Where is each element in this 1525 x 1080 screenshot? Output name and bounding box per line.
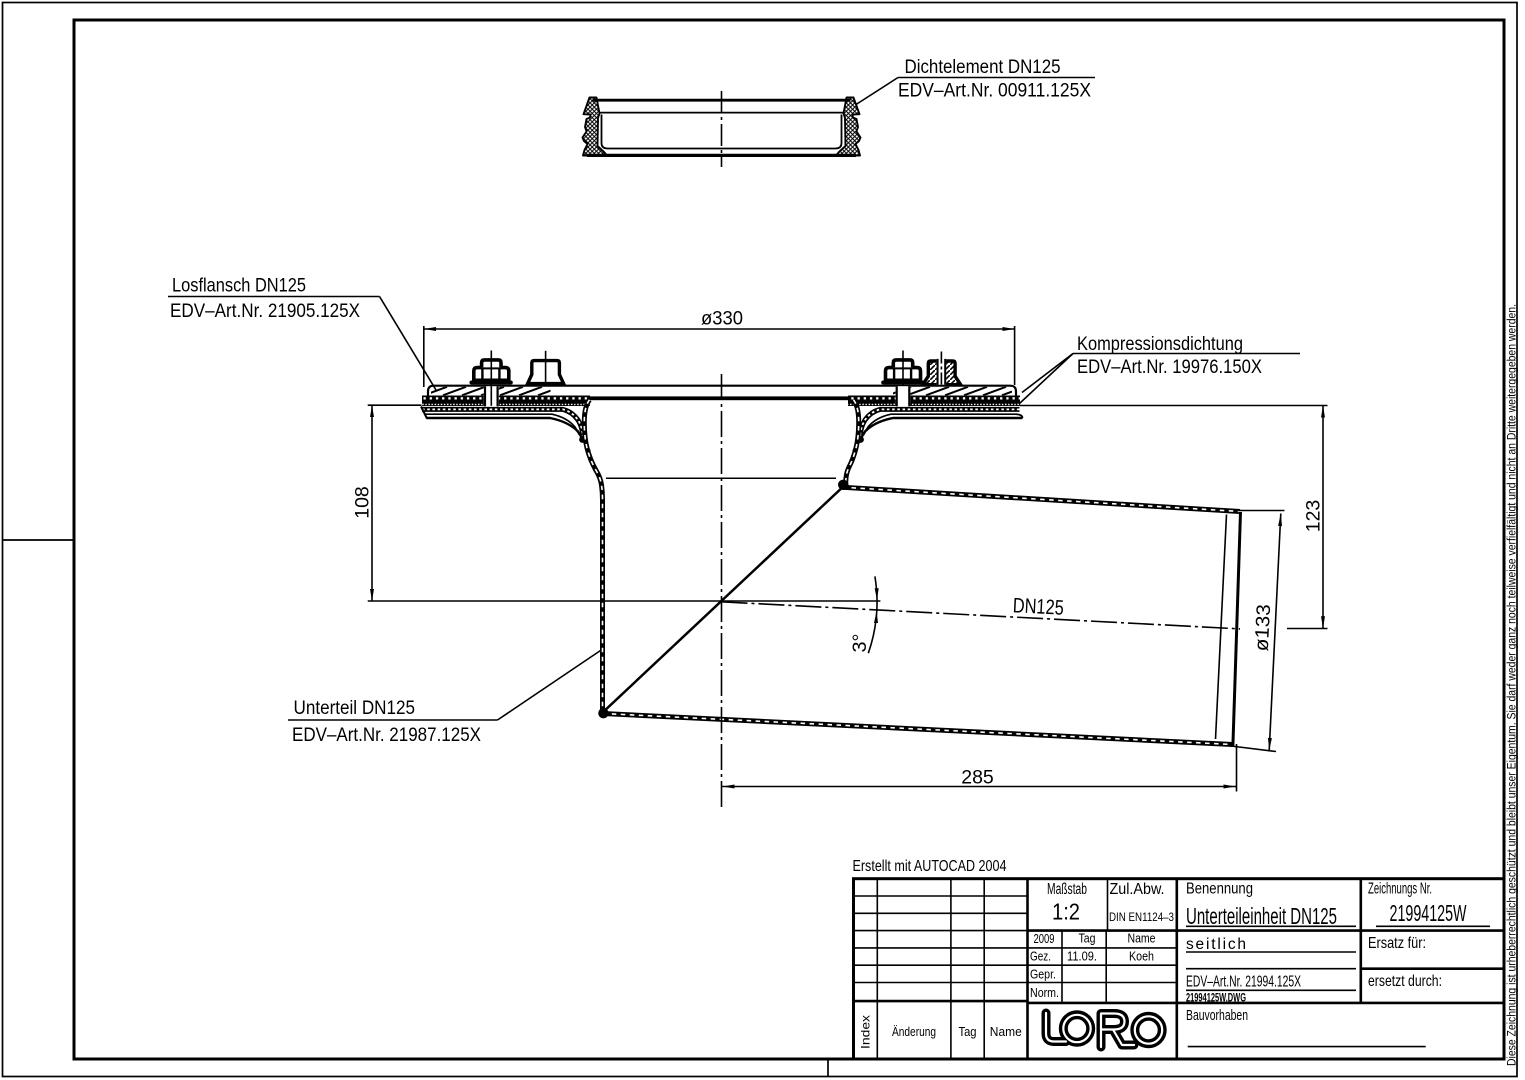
svg-text:Tag: Tag (959, 1025, 977, 1039)
svg-text:123: 123 (1303, 500, 1325, 533)
svg-text:21994125W: 21994125W (1390, 900, 1467, 926)
svg-text:ersetzt durch:: ersetzt durch: (1368, 973, 1442, 990)
svg-text:Name: Name (1128, 932, 1156, 946)
svg-text:Erstellt mit AUTOCAD 2004: Erstellt mit AUTOCAD 2004 (853, 858, 1007, 875)
svg-text:EDV–Art.Nr. 21994.125X: EDV–Art.Nr. 21994.125X (1186, 974, 1301, 991)
svg-text:Gez.: Gez. (1030, 950, 1051, 964)
svg-text:DIN EN1124–3: DIN EN1124–3 (1109, 910, 1174, 924)
svg-text:108: 108 (352, 486, 374, 519)
svg-text:285: 285 (961, 767, 994, 789)
svg-text:Gepr.: Gepr. (1030, 968, 1056, 982)
svg-text:ø330: ø330 (701, 308, 743, 330)
svg-text:Benennung: Benennung (1186, 881, 1253, 898)
svg-text:Änderung: Änderung (892, 1025, 936, 1039)
svg-text:11.09.: 11.09. (1067, 950, 1097, 964)
svg-text:Losflansch DN125: Losflansch DN125 (172, 274, 306, 296)
svg-text:3°: 3° (849, 634, 871, 653)
svg-text:Unterteileinheit DN125: Unterteileinheit DN125 (1186, 903, 1337, 929)
svg-text:Koeh: Koeh (1129, 950, 1154, 964)
svg-text:DN125: DN125 (1012, 594, 1064, 620)
svg-text:Name: Name (990, 1025, 1022, 1039)
svg-text:Bauvorhaben: Bauvorhaben (1186, 1008, 1248, 1024)
svg-text:EDV–Art.Nr. 21905.125X: EDV–Art.Nr. 21905.125X (170, 300, 360, 322)
svg-text:Unterteil DN125: Unterteil DN125 (294, 697, 416, 719)
svg-text:EDV–Art.Nr. 21987.125X: EDV–Art.Nr. 21987.125X (292, 724, 481, 746)
svg-text:Diese Zeichnung ist urheberrec: Diese Zeichnung ist urheberrechtlich ges… (1507, 304, 1519, 1066)
svg-text:21994125W.DWG: 21994125W.DWG (1186, 991, 1246, 1005)
svg-text:EDV–Art.Nr. 00911.125X: EDV–Art.Nr. 00911.125X (898, 80, 1091, 102)
svg-text:Norm.: Norm. (1030, 986, 1059, 1000)
svg-text:1:2: 1:2 (1052, 899, 1080, 925)
svg-text:Zul.Abw.: Zul.Abw. (1110, 881, 1165, 898)
svg-text:Kompressionsdichtung: Kompressionsdichtung (1077, 333, 1243, 355)
svg-text:EDV–Art.Nr. 19976.150X: EDV–Art.Nr. 19976.150X (1077, 356, 1262, 378)
svg-text:Ersatz für:: Ersatz für: (1368, 935, 1426, 952)
svg-text:Dichtelement DN125: Dichtelement DN125 (905, 56, 1061, 78)
svg-text:Zeichnungs Nr.: Zeichnungs Nr. (1368, 881, 1432, 898)
svg-text:Maßstab: Maßstab (1047, 881, 1087, 898)
svg-text:ø133: ø133 (1251, 604, 1275, 652)
svg-text:Index: Index (859, 1015, 873, 1049)
svg-text:2009: 2009 (1034, 932, 1055, 946)
svg-text:Tag: Tag (1079, 932, 1096, 946)
